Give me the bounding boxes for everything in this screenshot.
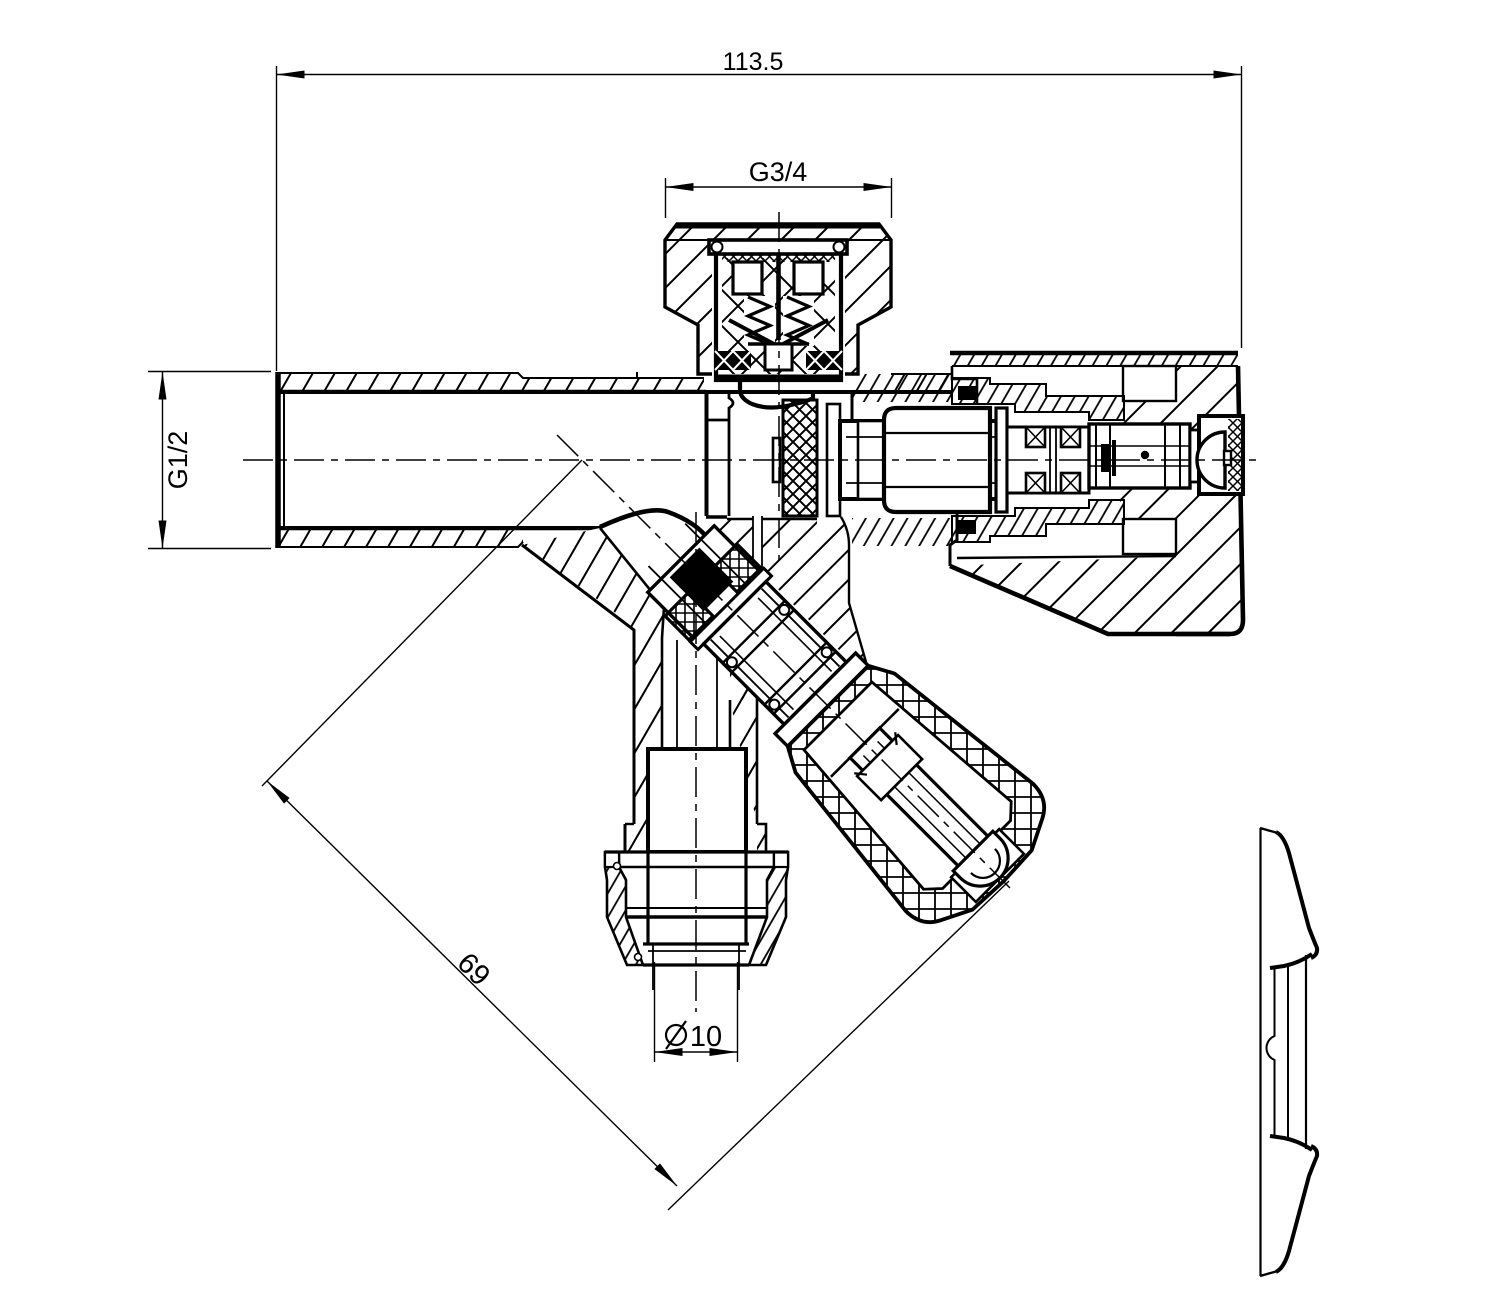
svg-text:113.5: 113.5 xyxy=(723,48,784,76)
svg-text:G1/2: G1/2 xyxy=(163,431,193,490)
svg-text:G3/4: G3/4 xyxy=(749,157,808,187)
svg-text:10: 10 xyxy=(690,1021,722,1053)
